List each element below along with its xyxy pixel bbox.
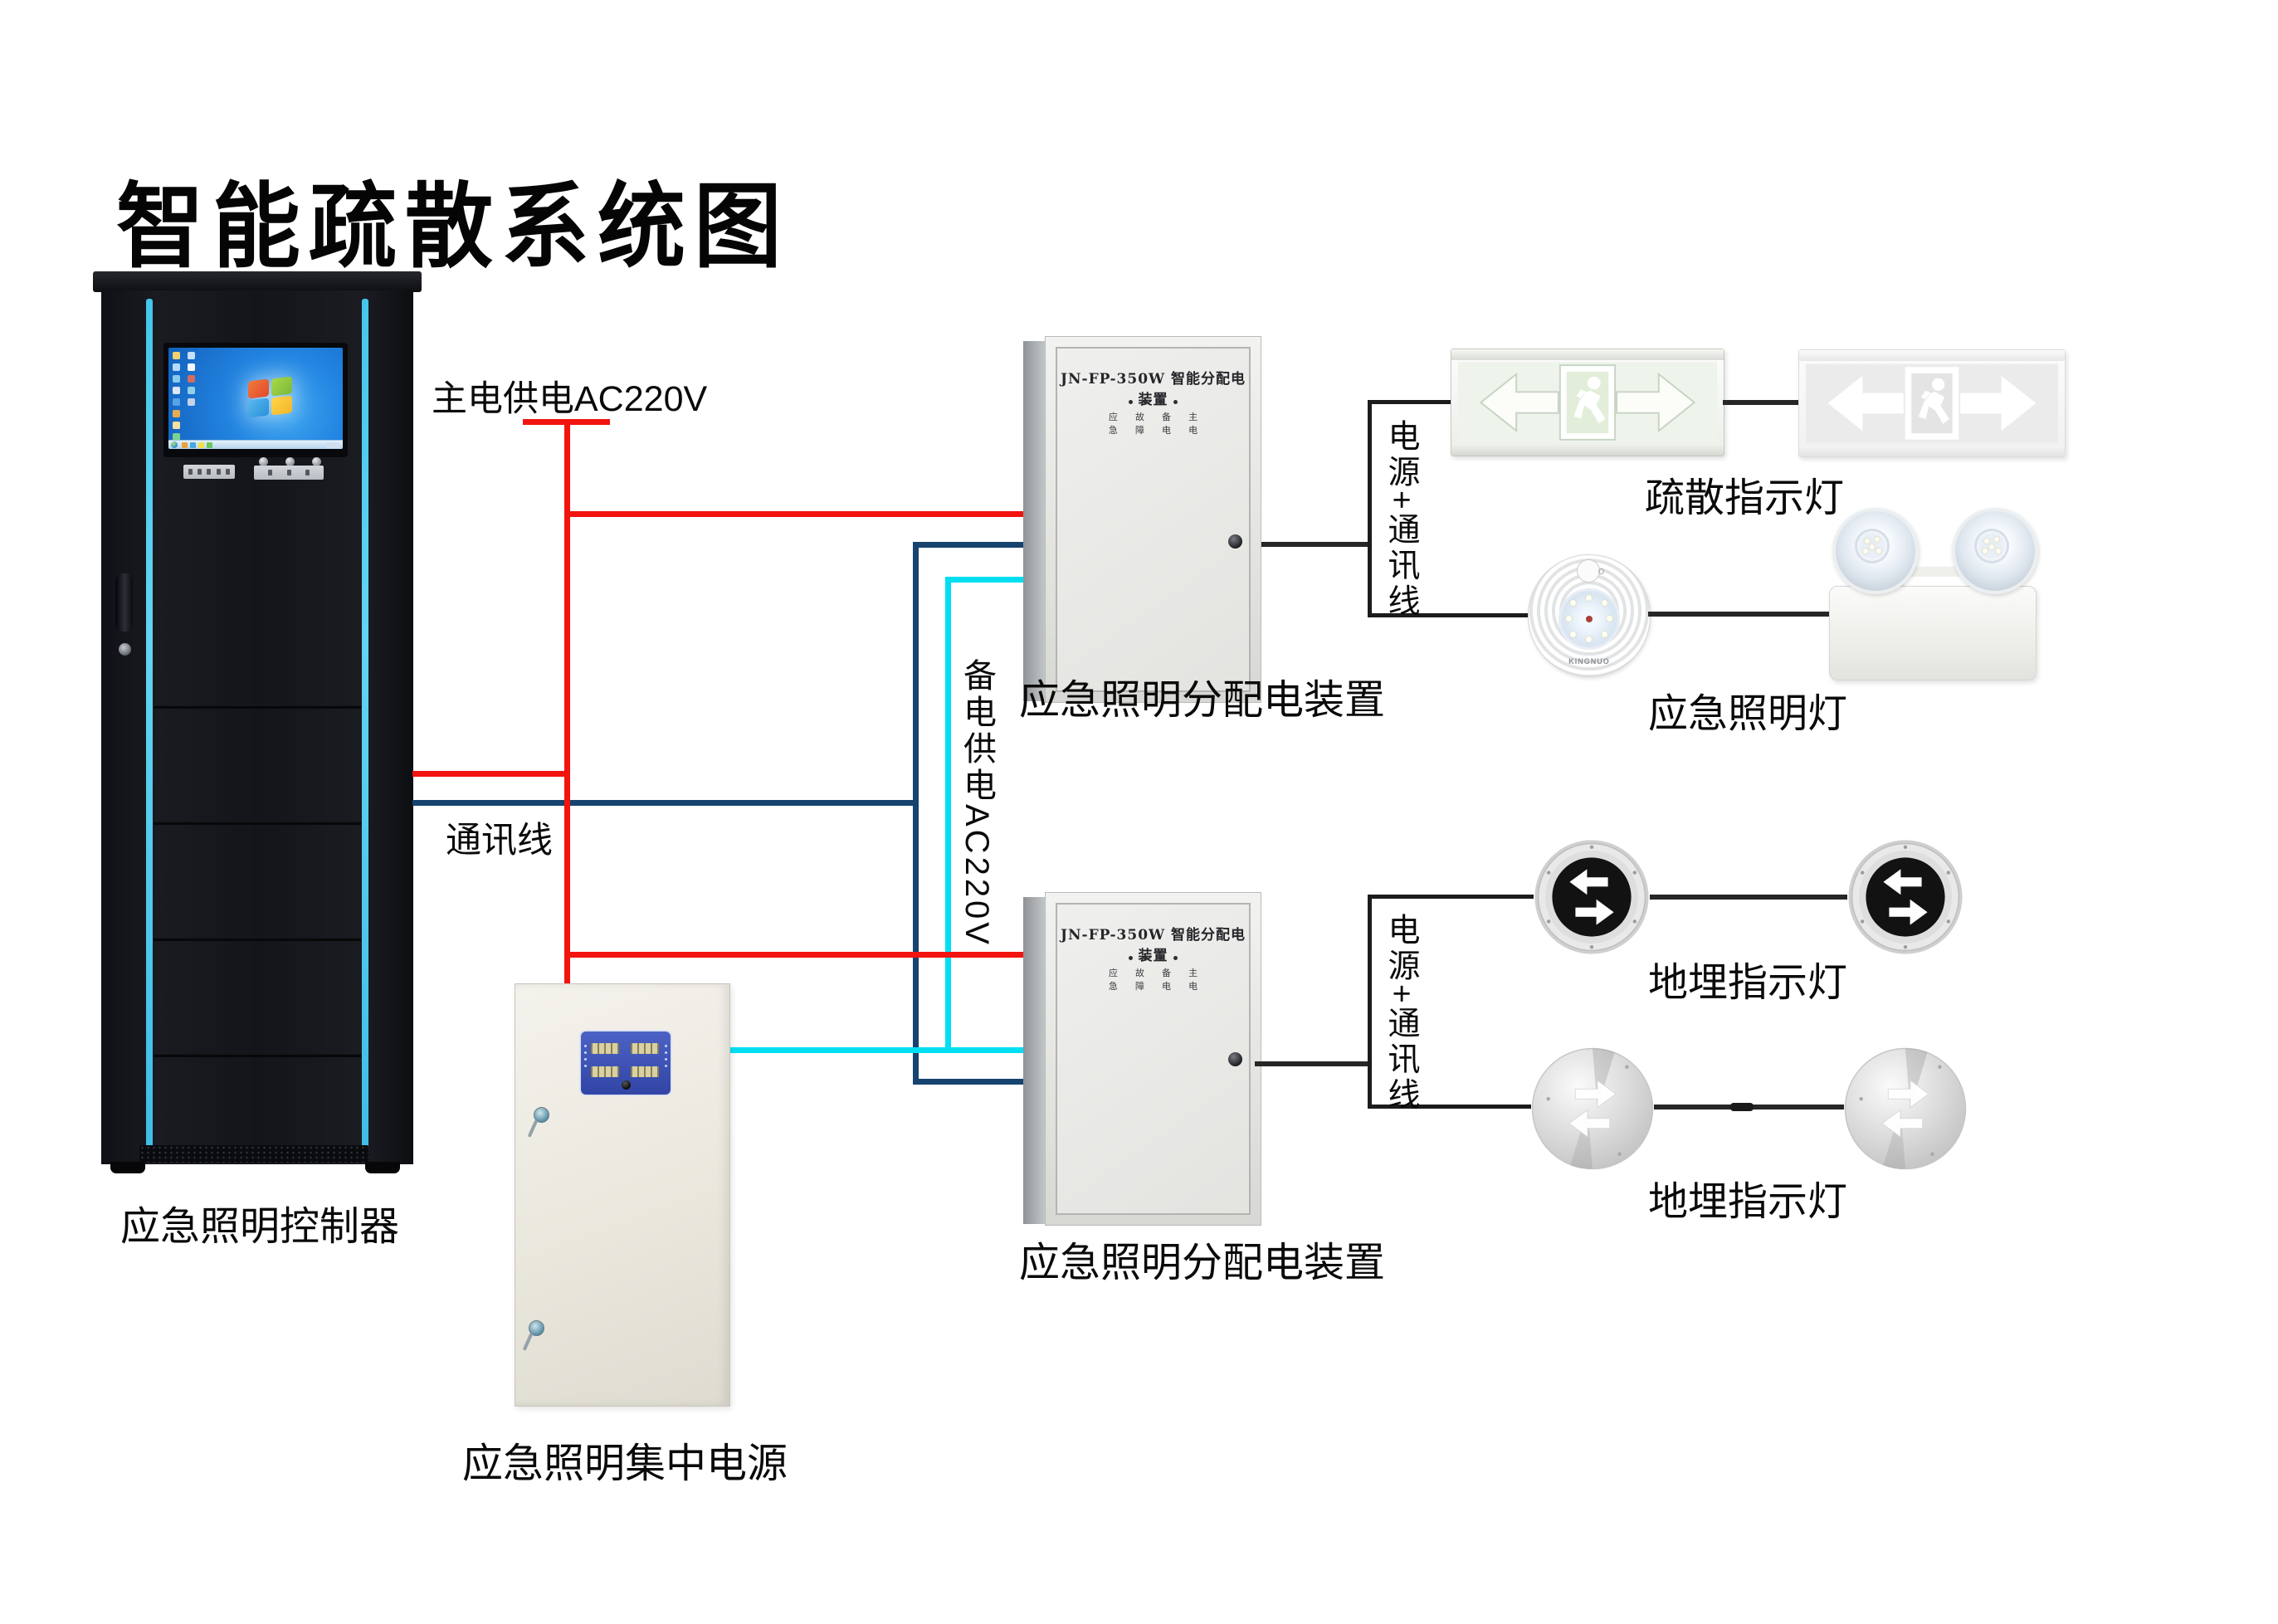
desktop-icon [173, 363, 180, 371]
main-power-to-box1 [567, 511, 1023, 517]
ground-light-black-2 [1847, 839, 1963, 959]
main-power-to-box2 [567, 952, 1023, 958]
panel-led [584, 1065, 587, 1067]
cabinet-screen-bezel [163, 343, 348, 457]
backup-wire-to-box1 [945, 577, 1023, 583]
cabinet-foot [110, 1162, 145, 1173]
desktop-icon [188, 352, 195, 359]
desktop-icon [173, 375, 180, 383]
controller-cabinet [101, 290, 413, 1164]
cabinet-button-panel [254, 466, 324, 480]
bus2-label: 电源+通讯线 [1378, 913, 1424, 1114]
box1-to-bus-line [1261, 542, 1369, 547]
comm-wire-vertical [913, 542, 919, 1085]
desktop-icon [173, 352, 180, 359]
backup-wire-from-power-supply [729, 1047, 1023, 1053]
round-light-led-panel [1559, 588, 1620, 650]
ground-light-black-1 [1534, 839, 1650, 959]
comm-wire-to-box2 [913, 1079, 1023, 1085]
cabinet-led-strip-left [146, 299, 153, 1155]
panel-led [665, 1045, 667, 1047]
taskbar-tray [326, 442, 339, 448]
ground-light-label-2: 地埋指示灯 [1623, 1168, 1872, 1227]
ground-light-icon [1531, 1047, 1654, 1170]
bus1-vertical [1368, 400, 1372, 617]
box2-to-bus-line [1255, 1061, 1369, 1066]
controller-label: 应急照明控制器 [112, 1193, 407, 1251]
lamp-lens [1857, 531, 1887, 561]
panel-led [665, 1065, 667, 1067]
panel-led [584, 1045, 587, 1047]
windows-logo-icon [248, 378, 293, 416]
windows-pane-green [271, 376, 292, 396]
comm-wire-from-cabinet [412, 800, 919, 806]
backup-power-label: 备电供电AC220V [953, 658, 1001, 948]
taskbar [168, 440, 343, 449]
exit-sign-label: 疏散指示灯 [1620, 465, 1869, 523]
sign1-to-sign2-line [1723, 400, 1798, 405]
distribution-box-2-label: 应急照明分配电装置 [1019, 1230, 1402, 1289]
cabinet-led-strip-right [362, 299, 368, 1155]
main-power-label: 主电供电AC220V [432, 370, 707, 422]
start-orb-icon [171, 441, 178, 448]
exit-sign-pictogram [1458, 362, 1717, 443]
box-front-face: JN-FP-350W 智能分配电装置 应 故 备 主 急 障 电 电 [1045, 336, 1261, 703]
twin-light-head-right [1952, 508, 2038, 594]
cabinet-lock [529, 1320, 544, 1336]
disc-row1-line [1650, 895, 1847, 900]
cabinet-vent [139, 1145, 368, 1163]
windows-pane-blue [248, 397, 269, 417]
emergency-light-label: 应急照明灯 [1623, 680, 1872, 739]
taskbar-item [198, 442, 204, 448]
sign-frame-top [1799, 350, 2065, 361]
round-to-twin-line [1648, 612, 1829, 617]
desktop-icon [188, 387, 195, 394]
panel-led [665, 1058, 667, 1061]
ground-light-steel-1 [1531, 1047, 1654, 1174]
sign-frame-bottom [1799, 446, 2065, 456]
box-side-face [1023, 341, 1045, 701]
exit-sign-pictogram [1806, 363, 2058, 444]
box-indicator-dots [1057, 956, 1249, 960]
box-indicator-dots [1057, 400, 1249, 404]
power-supply-control-panel [579, 1030, 672, 1096]
bus2-vertical [1368, 895, 1372, 1109]
ground-light-label-1: 地埋指示灯 [1623, 949, 1872, 1007]
led-display [591, 1043, 619, 1054]
box-indicator-row2: 急 障 电 电 [1057, 423, 1249, 436]
page-title: 智能疏散系统图 [116, 151, 790, 285]
taskbar-item [182, 442, 188, 448]
distribution-box-1: JN-FP-350W 智能分配电装置 应 故 备 主 急 障 电 电 [1023, 336, 1261, 701]
led-display [591, 1066, 619, 1077]
panel-knob [622, 1080, 631, 1090]
main-power-vertical [564, 422, 570, 986]
windows-pane-yellow [271, 395, 292, 415]
desktop-icon [173, 387, 180, 394]
led-display [631, 1043, 659, 1054]
ground-light-icon [1847, 839, 1963, 955]
box-lock-knob [1228, 1052, 1242, 1066]
desktop-icon [173, 422, 180, 429]
ground-light-icon [1534, 839, 1650, 955]
comm-wire-to-box1 [913, 542, 1023, 548]
power-supply-label: 应急照明集中电源 [455, 1431, 795, 1490]
cabinet-keyhole [119, 643, 131, 656]
desktop-icon [188, 398, 195, 406]
cabinet-lock [534, 1107, 549, 1123]
brand-text: KINGNUO [1529, 657, 1650, 666]
distribution-box-2: JN-FP-350W 智能分配电装置 应 故 备 主 急 障 电 电 [1023, 892, 1261, 1224]
bus1-label: 电源+通讯线 [1378, 419, 1424, 620]
cabinet-screen [168, 348, 343, 449]
box-indicator-row1: 应 故 备 主 [1057, 410, 1249, 423]
round-light-button [1577, 559, 1600, 583]
bus1-arm-top [1368, 400, 1451, 404]
backup-wire-vertical [945, 577, 951, 1053]
taskbar-item [207, 442, 212, 448]
box-front-face: JN-FP-350W 智能分配电装置 应 故 备 主 急 障 电 电 [1045, 892, 1261, 1226]
round-light-center [1586, 616, 1593, 622]
box-door: JN-FP-350W 智能分配电装置 应 故 备 主 急 障 电 电 [1056, 903, 1251, 1215]
cabinet-door-handle [115, 573, 133, 632]
led-display [631, 1066, 659, 1077]
desktop-icon [173, 398, 180, 406]
cable-joint [1730, 1103, 1754, 1111]
exit-sign-2 [1798, 349, 2066, 457]
sign-frame-top [1451, 349, 1724, 360]
box-indicator-row1: 应 故 备 主 [1057, 966, 1249, 979]
cabinet-top-cap [93, 271, 422, 292]
ground-light-icon [1844, 1047, 1967, 1170]
comm-label: 通讯线 [446, 812, 553, 863]
sign-frame-bottom [1451, 445, 1724, 456]
box-indicator-row2: 急 障 电 电 [1057, 979, 1249, 992]
box-lock-knob [1228, 534, 1242, 549]
panel-led [665, 1051, 667, 1054]
rack-shelf-line [154, 822, 361, 825]
desktop-icon [188, 363, 195, 371]
rack-shelf-line [154, 938, 361, 941]
lamp-lens [1977, 531, 2007, 561]
rack-shelf-line [154, 705, 361, 709]
box-door: JN-FP-350W 智能分配电装置 应 故 备 主 急 障 电 电 [1056, 347, 1251, 692]
desktop-icon [188, 375, 195, 383]
main-power-from-cabinet [412, 771, 570, 777]
windows-pane-red [248, 378, 269, 398]
rack-shelf-line [154, 1054, 361, 1057]
exit-sign-1 [1451, 349, 1724, 456]
twin-light-head-left [1832, 508, 1919, 594]
twin-light-body [1829, 586, 2037, 680]
ground-light-steel-2 [1844, 1047, 1967, 1174]
cabinet-foot [365, 1162, 400, 1173]
box-side-face [1023, 897, 1045, 1224]
evacuation-system-diagram: 智能疏散系统图 [0, 0, 2278, 1624]
desktop-icon [173, 410, 180, 417]
panel-led [584, 1051, 587, 1054]
central-power-supply [515, 983, 730, 1407]
taskbar-item [190, 442, 196, 448]
bus2-arm-top [1368, 895, 1534, 899]
distribution-box-1-label: 应急照明分配电装置 [1019, 667, 1402, 726]
cabinet-button-panel [183, 465, 235, 479]
panel-led [584, 1058, 587, 1061]
round-emergency-light: KINGNUO [1528, 554, 1651, 677]
